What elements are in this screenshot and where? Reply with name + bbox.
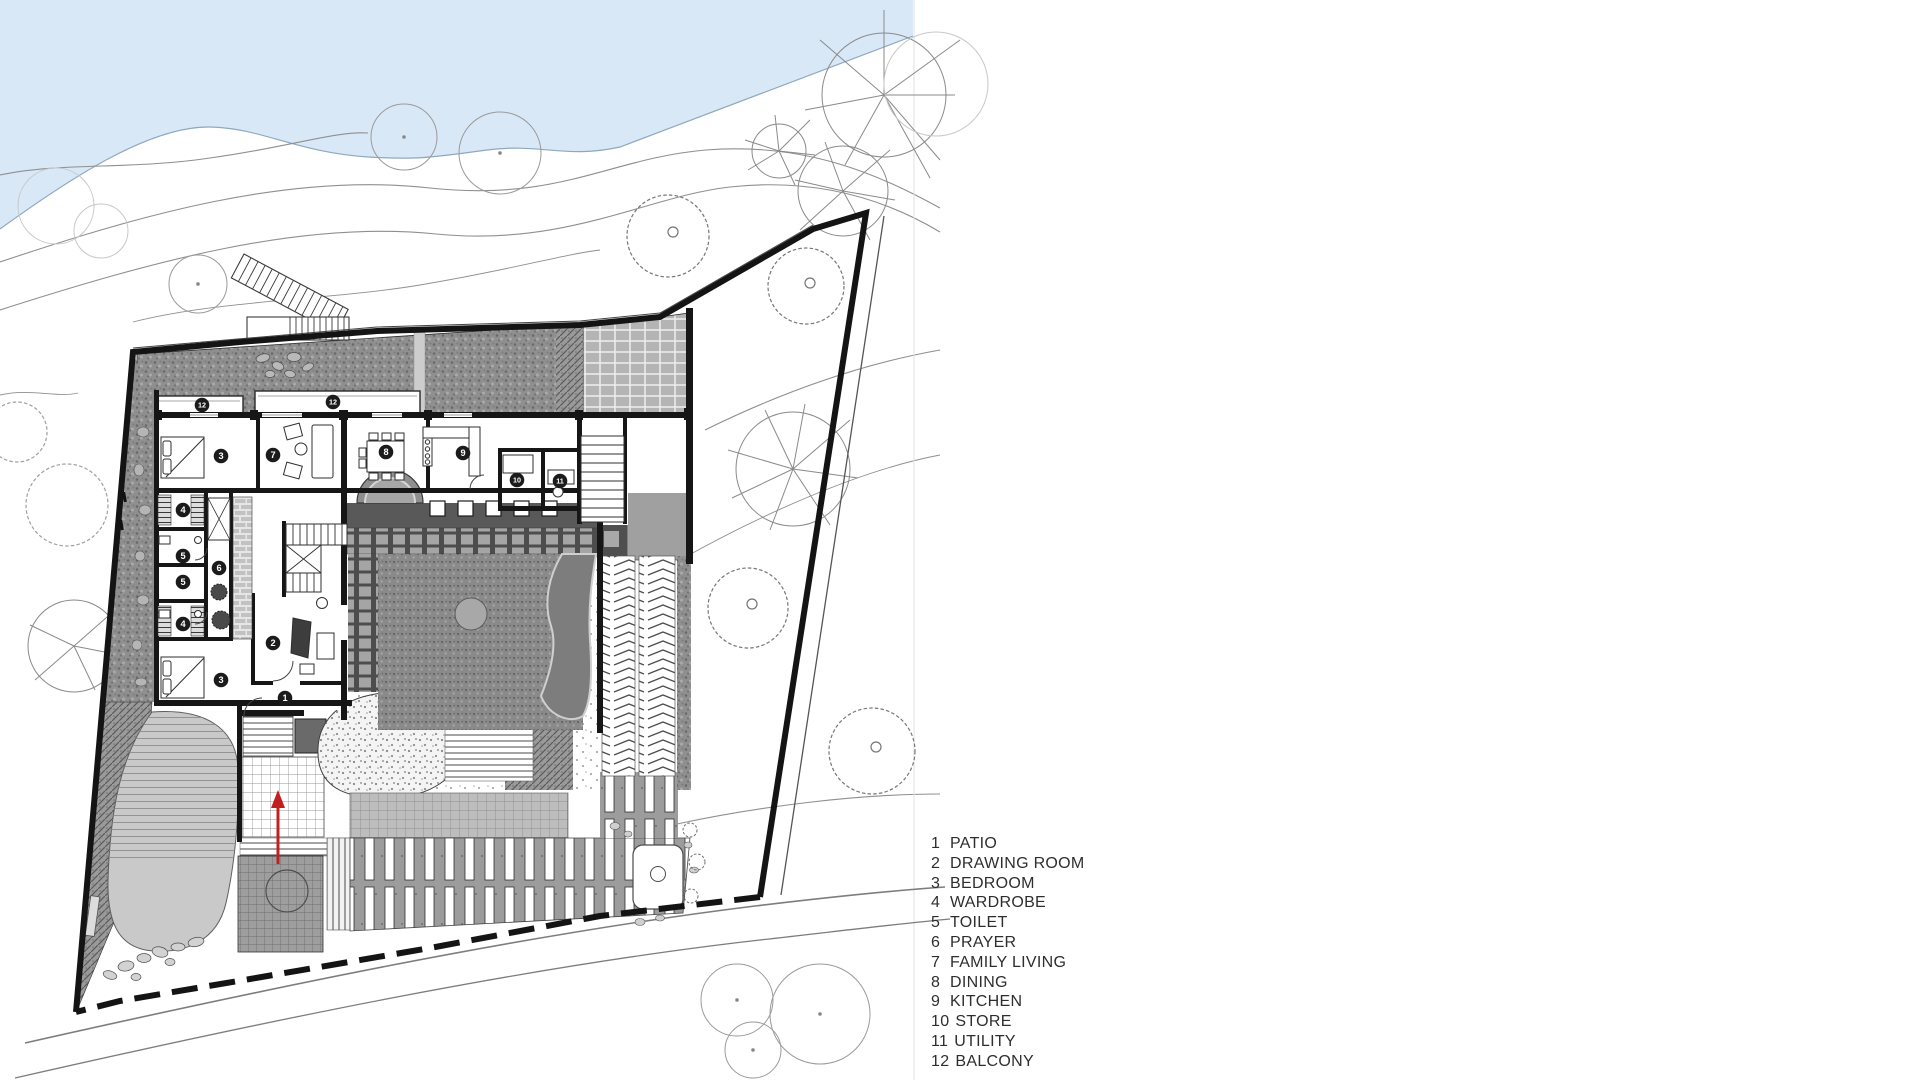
legend-label: FAMILY LIVING xyxy=(950,953,1066,973)
legend-item: 5TOILET xyxy=(931,913,1085,933)
legend-label: DRAWING ROOM xyxy=(950,854,1085,874)
legend-number: 5 xyxy=(931,913,944,933)
legend-item: 11UTILITY xyxy=(931,1032,1085,1052)
room-marker-6: 6 xyxy=(212,561,227,576)
legend-label: TOILET xyxy=(950,913,1008,933)
entry-steps xyxy=(243,716,293,756)
legend-item: 6PRAYER xyxy=(931,933,1085,953)
room-marker-11: 11 xyxy=(553,474,568,489)
chevron-band-2 xyxy=(639,556,675,776)
room-marker-4: 4 xyxy=(176,503,191,518)
room-marker-5: 5 xyxy=(176,575,191,590)
stair-east xyxy=(581,436,624,522)
legend-label: KITCHEN xyxy=(950,992,1022,1012)
legend-label: PATIO xyxy=(950,834,997,854)
svg-text:3: 3 xyxy=(218,451,223,461)
svg-text:9: 9 xyxy=(460,448,465,458)
legend-number: 11 xyxy=(931,1032,948,1052)
bed xyxy=(161,437,204,478)
svg-text:3: 3 xyxy=(218,675,223,685)
small-steps-strip xyxy=(327,838,350,930)
store-shelf xyxy=(503,455,533,473)
room-marker-9: 9 xyxy=(456,446,471,461)
legend-label: PRAYER xyxy=(950,933,1016,953)
crenel-border-top xyxy=(347,528,600,554)
legend-item: 7FAMILY LIVING xyxy=(931,953,1085,973)
legend-label: BEDROOM xyxy=(950,874,1035,894)
svg-text:12: 12 xyxy=(329,398,337,407)
legend-number: 9 xyxy=(931,992,944,1012)
legend-number: 8 xyxy=(931,973,944,993)
svg-text:11: 11 xyxy=(556,477,564,486)
legend-number: 6 xyxy=(931,933,944,953)
tile-court xyxy=(242,757,324,837)
room-marker-12: 12 xyxy=(195,398,210,413)
svg-text:4: 4 xyxy=(180,505,186,515)
legend-number: 1 xyxy=(931,834,944,854)
brick-court-strip xyxy=(233,497,252,639)
svg-text:4: 4 xyxy=(180,619,186,629)
svg-text:2: 2 xyxy=(270,638,275,648)
room-marker-4: 4 xyxy=(176,617,191,632)
chevron-band-1 xyxy=(602,556,635,776)
crenel-border-left xyxy=(348,554,378,692)
legend-item: 1PATIO xyxy=(931,834,1085,854)
entry-court-bricks xyxy=(583,313,689,413)
room-marker-5: 5 xyxy=(176,549,191,564)
legend-label: BALCONY xyxy=(955,1052,1034,1072)
svg-text:1: 1 xyxy=(282,693,287,703)
speckle-strip-east xyxy=(677,556,691,790)
legend-label: WARDROBE xyxy=(950,893,1046,913)
planting-patch xyxy=(556,326,583,412)
legend-item: 12BALCONY xyxy=(931,1052,1085,1072)
ramp-steps xyxy=(445,727,533,781)
svg-text:12: 12 xyxy=(198,401,206,410)
legend-number: 3 xyxy=(931,874,944,894)
svg-text:6: 6 xyxy=(216,563,221,573)
svg-text:5: 5 xyxy=(180,577,185,587)
room-marker-3: 3 xyxy=(214,449,229,464)
fence-line xyxy=(781,216,884,895)
legend-label: UTILITY xyxy=(954,1032,1016,1052)
legend-item: 10STORE xyxy=(931,1012,1085,1032)
room-marker-12: 12 xyxy=(326,395,341,410)
legend-label: DINING xyxy=(950,973,1008,993)
bed xyxy=(161,657,204,698)
paved-square xyxy=(238,856,323,952)
court-circle xyxy=(455,598,487,630)
legend-item: 4WARDROBE xyxy=(931,893,1085,913)
room-marker-8: 8 xyxy=(379,445,394,460)
legend-label: STORE xyxy=(955,1012,1011,1032)
room-marker-2: 2 xyxy=(266,636,281,651)
svg-text:7: 7 xyxy=(270,450,275,460)
room-marker-3: 3 xyxy=(214,673,229,688)
svg-text:5: 5 xyxy=(180,551,185,561)
svg-text:8: 8 xyxy=(383,447,388,457)
legend-number: 7 xyxy=(931,953,944,973)
room-marker-10: 10 xyxy=(510,473,525,488)
external-staircase xyxy=(231,254,349,340)
legend-item: 2DRAWING ROOM xyxy=(931,854,1085,874)
room-marker-1: 1 xyxy=(278,691,293,706)
mesh-band xyxy=(350,793,568,838)
legend-item: 9KITCHEN xyxy=(931,992,1085,1012)
legend-number: 10 xyxy=(931,1012,949,1032)
site-plan-sheet: 12123789101145546231 1PATIO 2DRAWING ROO… xyxy=(0,0,1920,1080)
legend-item: 3BEDROOM xyxy=(931,874,1085,894)
legend-number: 12 xyxy=(931,1052,949,1072)
svg-text:10: 10 xyxy=(513,476,521,485)
legend-number: 4 xyxy=(931,893,944,913)
legend-number: 2 xyxy=(931,854,944,874)
prayer-lightwell xyxy=(208,498,230,540)
room-marker-7: 7 xyxy=(266,448,281,463)
water-body xyxy=(0,0,913,229)
legend-item: 8DINING xyxy=(931,973,1085,993)
legend: 1PATIO 2DRAWING ROOM 3BEDROOM 4WARDROBE … xyxy=(931,834,1085,1072)
